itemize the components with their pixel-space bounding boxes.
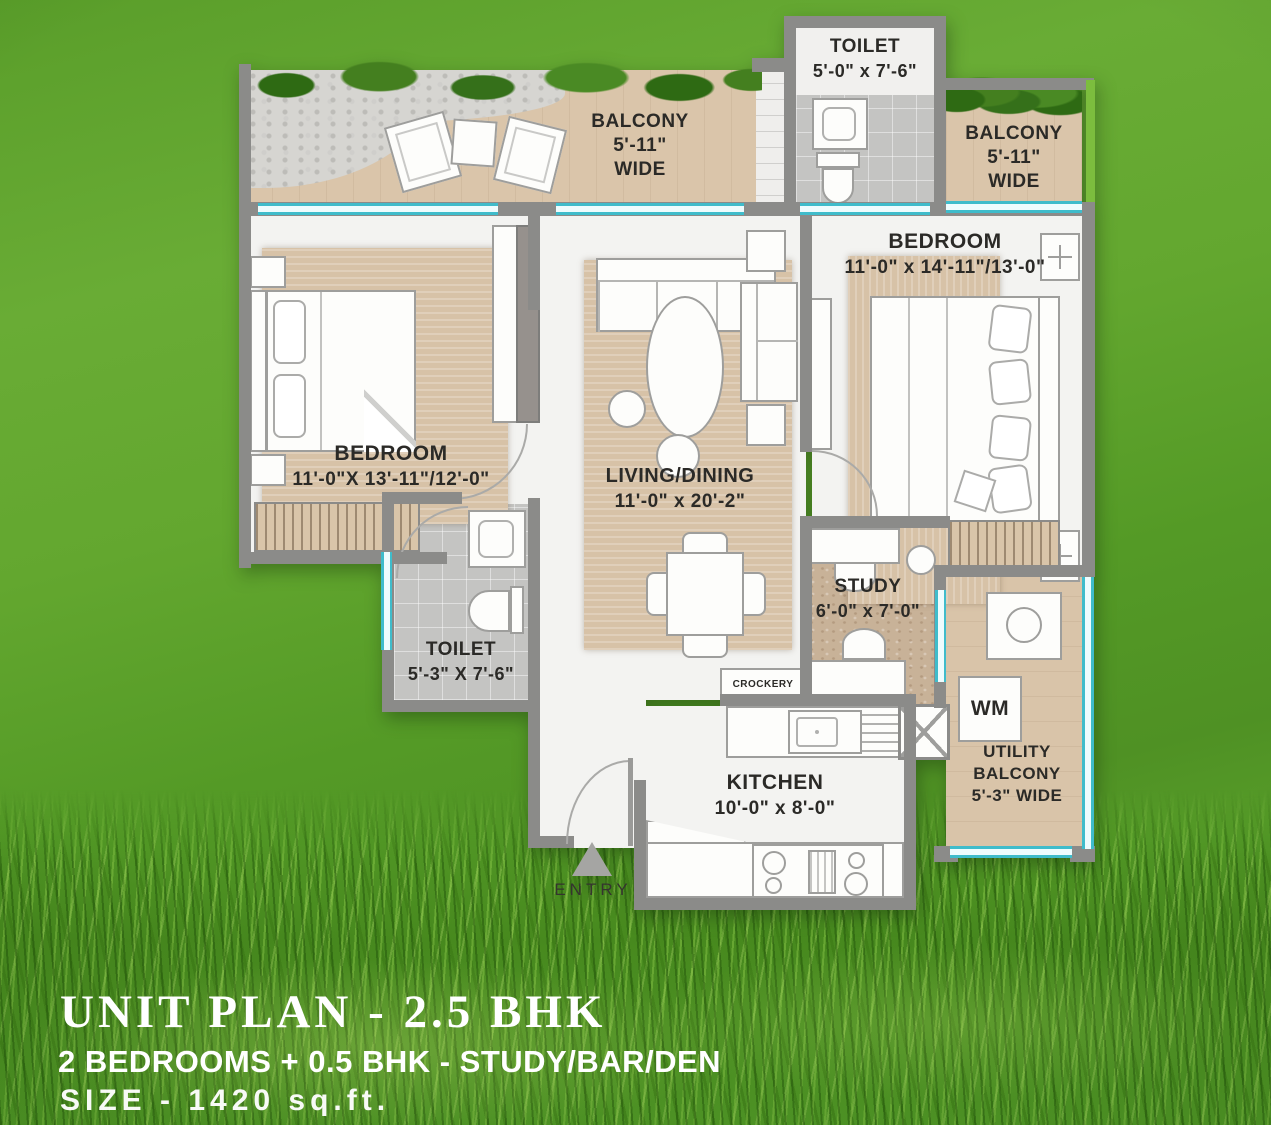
- drainboard-icon: [862, 712, 900, 752]
- armchair-sofa-icon: [740, 282, 798, 402]
- wall: [784, 22, 796, 212]
- pouf-icon: [608, 390, 646, 428]
- washbasin-icon: [812, 98, 868, 150]
- wardrobe-icon: [948, 520, 1060, 570]
- balcony-right-label: BALCONY 5'-11" WIDE: [946, 112, 1082, 204]
- wc-toilet-icon: [816, 152, 864, 206]
- dresser-icon: [254, 502, 420, 552]
- stove-icon: [752, 844, 884, 898]
- side-table-icon: [746, 404, 786, 446]
- coffee-table-icon: [646, 296, 724, 438]
- window: [800, 203, 930, 215]
- living-dining-label: LIVING/DINING 11'-0" x 20'-2": [560, 452, 800, 526]
- tv-console-icon: [810, 298, 832, 450]
- study-chair-icon: [842, 628, 886, 660]
- utility-balcony-label: UTILITY BALCONY 5'-3" WIDE: [946, 732, 1088, 816]
- entry-label: ENTRY: [548, 878, 638, 902]
- utility-sink-icon: [986, 592, 1062, 660]
- dining-table-icon: [666, 552, 744, 636]
- room-name: STUDY: [800, 575, 936, 599]
- wall: [752, 58, 796, 72]
- lounge-cushion-icon: [450, 119, 497, 168]
- room-dims: 11'-0" x 20'-2": [560, 490, 800, 514]
- plan-subtitle: 2 BEDROOMS + 0.5 BHK - STUDY/BAR/DEN: [58, 1044, 721, 1080]
- side-table-icon: [746, 230, 786, 272]
- floor-plan: CROCKERY WM: [0, 0, 1271, 1125]
- bedroom-left-label: BEDROOM 11'-0"X 13'-11"/12'-0": [246, 432, 536, 502]
- room-name: BEDROOM: [820, 229, 1070, 256]
- room-dims: 6'-0" x 7'-0": [800, 600, 936, 623]
- room-dims: 10'-0" x 8'-0": [650, 797, 900, 821]
- room-name: BEDROOM: [246, 441, 536, 468]
- bed-headboard-icon: [250, 290, 267, 452]
- entry-door-leaf: [628, 758, 633, 846]
- edge-greenstrip: [1086, 80, 1095, 212]
- wall: [528, 712, 540, 848]
- bed-icon: [870, 296, 1040, 526]
- wall: [634, 898, 916, 910]
- window: [950, 846, 1072, 858]
- wm-label: WM: [960, 696, 1020, 723]
- room-dims: 5'-3" X 7'-6": [390, 663, 532, 686]
- wall: [239, 552, 447, 564]
- room-name: BALCONY 5'-11" WIDE: [946, 122, 1082, 195]
- room-dims: 11'-0" x 14'-11"/13'-0": [820, 256, 1070, 280]
- dining-chair-icon: [682, 634, 728, 658]
- wardrobe-icon: [492, 225, 518, 423]
- window: [556, 203, 744, 215]
- study-label: STUDY 6'-0" x 7'-0": [800, 566, 936, 632]
- bed-headboard-icon: [1038, 296, 1060, 526]
- wall: [720, 694, 916, 706]
- window: [258, 203, 498, 215]
- wall: [800, 516, 950, 528]
- room-dims: 11'-0"X 13'-11"/12'-0": [246, 468, 536, 492]
- plan-size: SIZE - 1420 sq.ft.: [60, 1084, 390, 1118]
- kitchen-label: KITCHEN 10'-0" x 8'-0": [650, 760, 900, 832]
- toilet-bottom-label: TOILET 5'-3" X 7'-6": [390, 630, 532, 694]
- wall: [934, 565, 1095, 577]
- entry-text: ENTRY: [548, 879, 638, 901]
- wall: [934, 22, 946, 212]
- wall: [1082, 212, 1095, 577]
- wall: [382, 700, 540, 712]
- wall: [800, 216, 812, 452]
- nightstand-icon: [250, 256, 286, 288]
- wall: [528, 216, 540, 310]
- room-name: BALCONY 5'-11" WIDE: [560, 110, 720, 183]
- entry-arrow-icon: [572, 842, 612, 876]
- room-dims: 5'-0" x 7'-6": [796, 60, 934, 83]
- washbasin-icon: [468, 510, 526, 568]
- kitchen-sink-icon: [788, 710, 862, 754]
- wall: [904, 694, 916, 910]
- bed-icon: [266, 290, 416, 452]
- balcony-left-label: BALCONY 5'-11" WIDE: [560, 100, 720, 192]
- bedroom-right-label: BEDROOM 11'-0" x 14'-11"/13'-0": [820, 222, 1070, 288]
- room-name: TOILET: [796, 35, 934, 59]
- toilet-top-label: TOILET 5'-0" x 7'-6": [796, 30, 934, 88]
- wall: [946, 78, 1094, 90]
- plan-title: UNIT PLAN - 2.5 BHK: [60, 985, 606, 1039]
- room-name: UTILITY BALCONY 5'-3" WIDE: [946, 741, 1088, 806]
- wall: [784, 16, 946, 28]
- window: [935, 590, 946, 682]
- room-name: TOILET: [390, 638, 532, 662]
- room-name: KITCHEN: [650, 770, 900, 797]
- crockery-label: CROCKERY: [722, 679, 804, 692]
- dining-chair-icon: [742, 572, 766, 616]
- room-name: LIVING/DINING: [560, 464, 800, 490]
- study-desk-icon: [806, 528, 900, 564]
